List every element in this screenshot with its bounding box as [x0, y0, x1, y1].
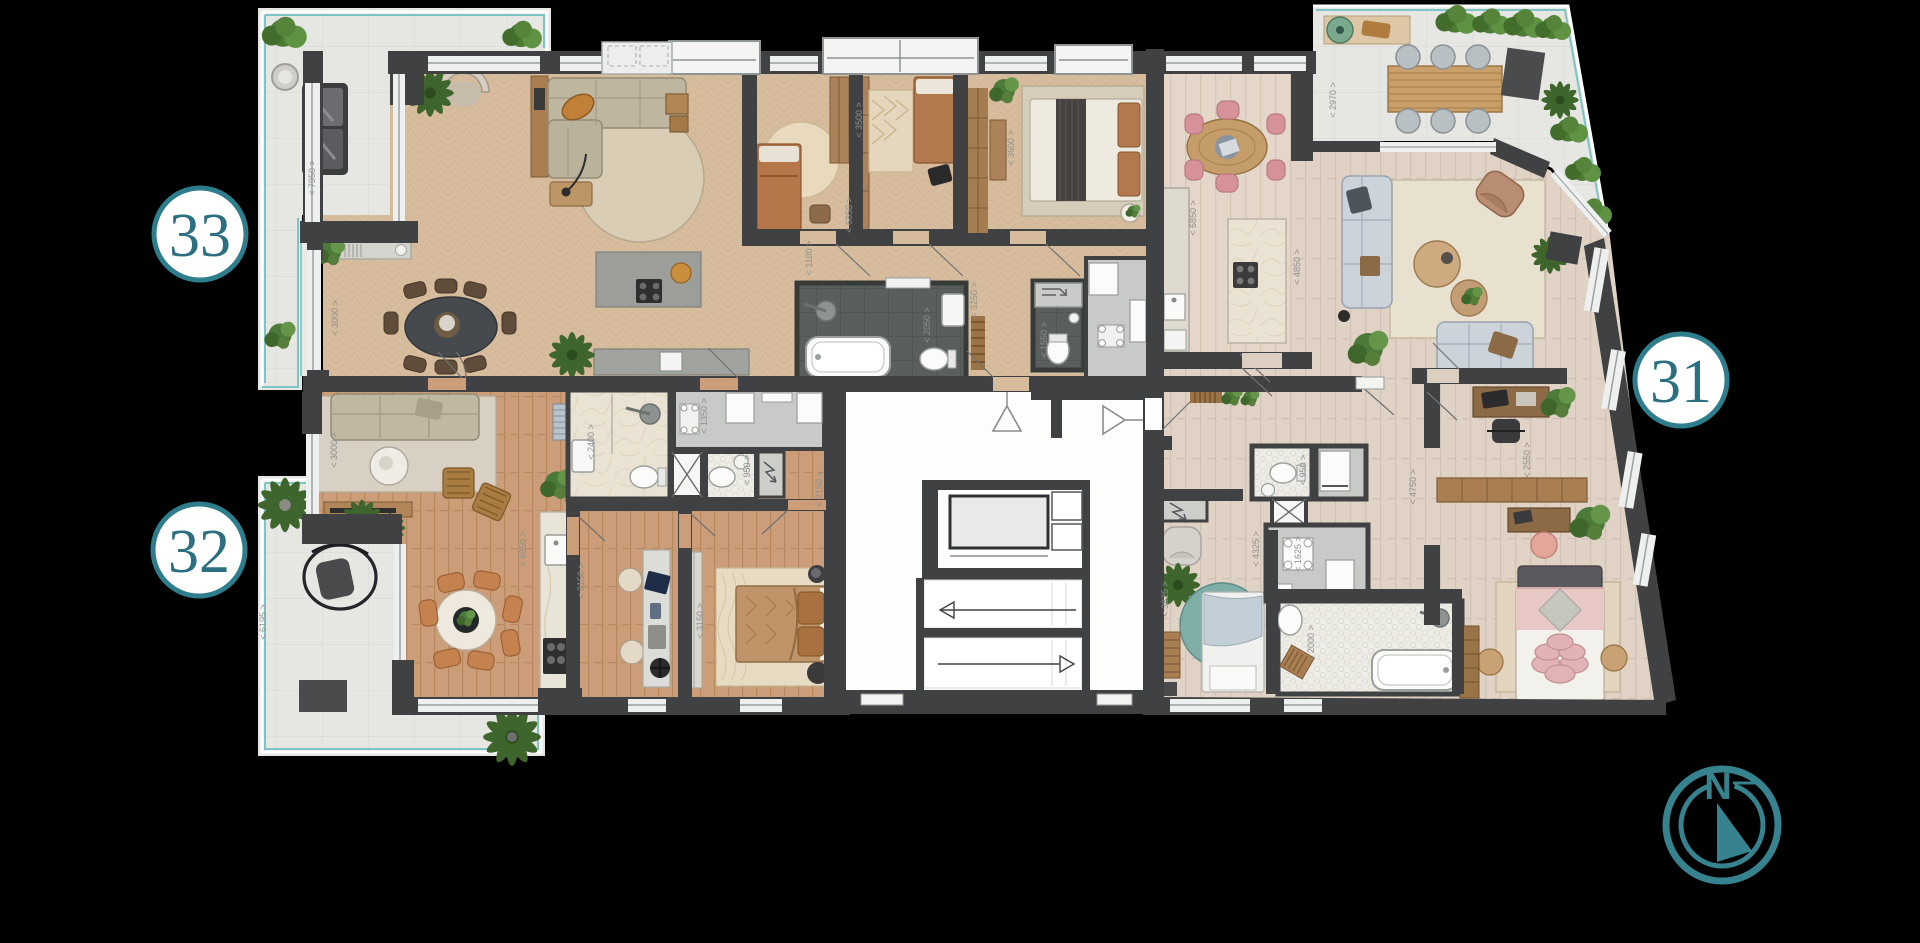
svg-text:< 2150 >: < 2150 > — [814, 471, 824, 507]
svg-text:< 7950 >: < 7950 > — [307, 160, 317, 196]
svg-text:< 6195 >: < 6195 > — [258, 604, 268, 640]
svg-text:< 2970 >: < 2970 > — [1328, 82, 1338, 118]
svg-text:< 4850 >: < 4850 > — [1292, 249, 1302, 285]
svg-text:< 3825 >: < 3825 > — [1160, 581, 1170, 617]
svg-text:< 6850 >: < 6850 > — [1188, 200, 1198, 236]
svg-text:< 3150 >: < 3150 > — [695, 603, 705, 639]
svg-text:< 4750 >: < 4750 > — [1408, 469, 1418, 505]
svg-text:< 1100 >: < 1100 > — [804, 241, 814, 276]
svg-text:N: N — [1704, 766, 1731, 808]
svg-text:32: 32 — [168, 518, 230, 586]
svg-text:< 3250 >: < 3250 > — [969, 282, 979, 318]
svg-text:< 6850 >: < 6850 > — [518, 531, 528, 567]
svg-text:< 6850 >: < 6850 > — [844, 197, 854, 233]
svg-text:< 2000 >: < 2000 > — [1306, 625, 1316, 661]
svg-text:< 3600 >: < 3600 > — [1006, 130, 1016, 166]
svg-text:< 3150 >: < 3150 > — [576, 563, 586, 599]
svg-text:< 3000 >: < 3000 > — [329, 432, 339, 468]
svg-text:< 2400 >: < 2400 > — [586, 424, 596, 460]
svg-text:< 4325 >: < 4325 > — [1251, 531, 1261, 567]
svg-text:< 1350 >: < 1350 > — [699, 398, 709, 434]
svg-text:31: 31 — [1650, 348, 1712, 416]
svg-text:< 950 >: < 950 > — [1298, 455, 1308, 486]
svg-text:< 2550 >: < 2550 > — [1522, 442, 1532, 478]
svg-text:< 1625 >: < 1625 > — [1293, 536, 1303, 572]
svg-text:< 3500 >: < 3500 > — [854, 102, 864, 138]
svg-text:33: 33 — [169, 202, 231, 270]
svg-text:< 950 >: < 950 > — [742, 455, 752, 486]
svg-text:< 3000 >: < 3000 > — [330, 300, 340, 336]
svg-text:< 1550 >: < 1550 > — [1039, 322, 1049, 358]
svg-text:< 2050 >: < 2050 > — [922, 307, 932, 343]
